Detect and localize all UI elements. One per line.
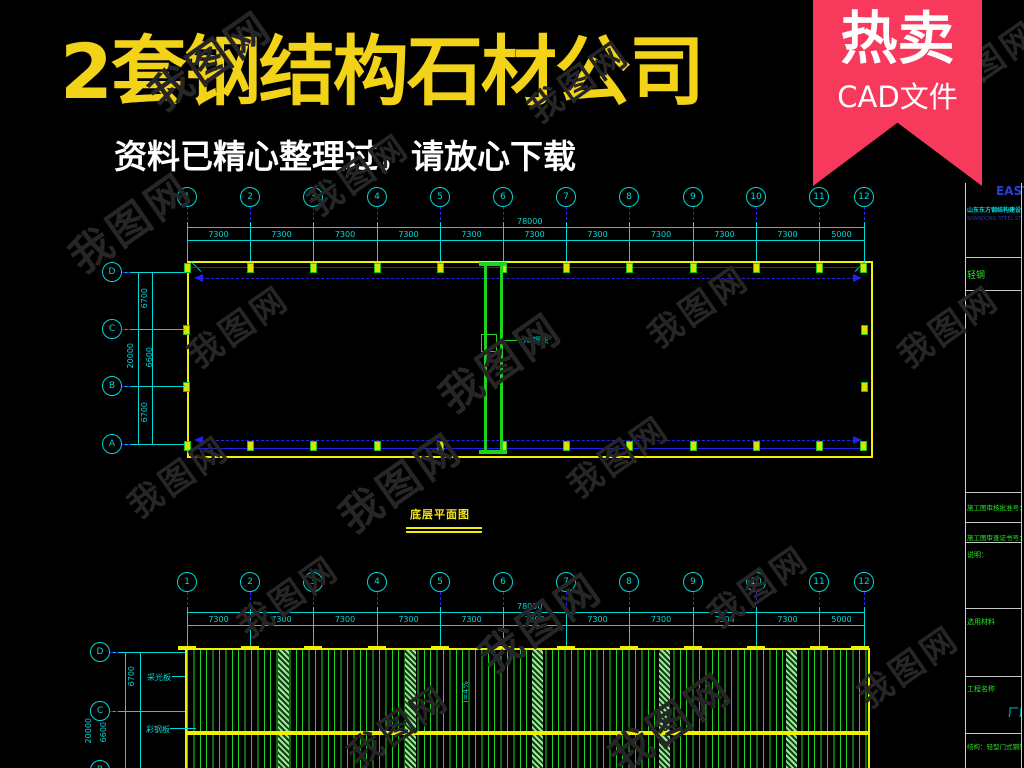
grid-bubble: 1 <box>177 572 197 592</box>
roof-label: 采光板 <box>147 672 171 683</box>
dim-tick <box>313 607 314 648</box>
grid-bubble: 12 <box>854 572 874 592</box>
dim-value: 7300 <box>394 615 424 624</box>
gutter-mark <box>368 646 386 650</box>
titleblock-field: 施工图审查证书号： <box>967 532 1021 542</box>
row-bubble: D <box>90 642 110 662</box>
dim-value-rotated: 20000 <box>84 718 93 743</box>
dim-tick <box>566 607 567 648</box>
dim-value: 7300 <box>646 615 676 624</box>
dim-tick <box>693 607 694 648</box>
dim-tick <box>120 652 185 653</box>
dim-line <box>125 652 126 768</box>
roof-hatch <box>187 650 868 768</box>
dim-value: 7300 <box>710 615 740 624</box>
skylight-band <box>786 650 797 768</box>
dim-tick <box>440 607 441 648</box>
dim-tick <box>819 607 820 648</box>
grid-bubble: 6 <box>493 572 513 592</box>
titleblock-field: 结构：轻型门式钢架 <box>967 741 1021 751</box>
roof-edge <box>185 648 187 768</box>
dim-value-rotated: 6600 <box>99 722 108 742</box>
row-bubble: B <box>90 760 110 768</box>
skylight-band <box>278 650 289 768</box>
dim-value: 7300 <box>330 615 360 624</box>
grid-bubble: 10 <box>746 572 766 592</box>
gutter-mark <box>557 646 575 650</box>
dim-tick <box>377 607 378 648</box>
roof-edge <box>868 648 870 768</box>
slope-label: i=4% <box>461 681 470 703</box>
dim-value: 7300 <box>204 615 234 624</box>
gutter-mark <box>810 646 828 650</box>
gutter-mark <box>304 646 322 650</box>
grid-bubble: 5 <box>430 572 450 592</box>
dim-tick <box>503 607 504 648</box>
dim-value: 7300 <box>773 615 803 624</box>
caption-underline <box>406 531 482 533</box>
titleblock-field: 选用材料 <box>967 617 1021 627</box>
dim-line <box>187 612 864 613</box>
dim-tick <box>250 607 251 648</box>
ribbon-cad-label: CAD文件 <box>813 74 982 116</box>
dim-value: 5000 <box>827 615 857 624</box>
dim-value: 7300 <box>583 615 613 624</box>
roof-edge <box>185 648 870 650</box>
titleblock-line <box>966 257 1021 258</box>
grid-bubble: 2 <box>240 572 260 592</box>
leader-line <box>170 728 196 729</box>
subtitle: 资料已精心整理过，请放心下载 <box>114 130 576 178</box>
dim-line <box>187 625 864 626</box>
gutter-mark <box>178 646 196 650</box>
titleblock-field: 说明： <box>967 550 1021 560</box>
dim-tick <box>187 607 188 648</box>
gutter-mark <box>431 646 449 650</box>
skylight-band <box>405 650 416 768</box>
cad-poster: 我图网我图网我图网我图网我图网我图网我图网我图网我图网我图网我图网我图网我图网我… <box>0 0 1024 768</box>
skylight-band <box>659 650 670 768</box>
gutter-mark <box>241 646 259 650</box>
grid-bubble: 11 <box>809 572 829 592</box>
drawing1-caption: 底层平面图 <box>410 506 470 522</box>
titleblock-field: 厂房 <box>1008 704 1021 720</box>
grid-bubble: 8 <box>619 572 639 592</box>
skylight-band <box>532 650 543 768</box>
dim-total-value: 78000 <box>517 602 542 611</box>
dim-value: 7300 <box>267 615 297 624</box>
grid-bubble: 7 <box>556 572 576 592</box>
roof-label: 彩钢板 <box>146 724 170 735</box>
dim-tick <box>864 607 865 648</box>
title-block: EAST 山东东方钢结构建设工程有限公司 SHANDONG STEEL STRU… <box>965 183 1023 768</box>
titleblock-line <box>966 676 1021 677</box>
titleblock-line <box>966 733 1021 734</box>
dim-line <box>140 652 141 768</box>
grid-bubble: 3 <box>303 572 323 592</box>
titleblock-field: 工程名称 <box>967 684 1021 694</box>
dim-tick <box>120 711 185 712</box>
leader-line <box>172 676 185 677</box>
gutter-mark <box>747 646 765 650</box>
titleblock-line <box>966 290 1021 291</box>
titleblock-line <box>966 492 1021 493</box>
page-title: 2套钢结构石材公司 <box>60 10 703 120</box>
gutter-mark <box>684 646 702 650</box>
ridge-line <box>185 731 870 735</box>
titleblock-line <box>966 608 1021 609</box>
row-bubble: C <box>90 701 110 721</box>
gutter-mark <box>620 646 638 650</box>
titleblock-field: 轻钢 <box>967 268 1021 281</box>
gutter-mark <box>851 646 869 650</box>
titleblock-company: 山东东方钢结构建设工程有限公司 <box>967 205 1022 214</box>
dim-tick <box>756 607 757 648</box>
titleblock-line <box>966 522 1021 523</box>
titleblock-field: 施工图审核批准号： <box>967 502 1021 512</box>
dim-value: 7300 <box>520 615 550 624</box>
dim-value-rotated: 6700 <box>127 666 136 686</box>
titleblock-brand: EAST <box>996 184 1024 198</box>
grid-bubble: 9 <box>683 572 703 592</box>
titleblock-line <box>966 542 1021 543</box>
ribbon-hot-label: 热卖 <box>813 10 982 70</box>
grid-bubble: 4 <box>367 572 387 592</box>
gutter-mark <box>494 646 512 650</box>
titleblock-company-en: SHANDONG STEEL STRUCTURE CO.,LTD <box>967 216 1022 222</box>
titleblock-border <box>965 183 966 768</box>
caption-underline <box>406 527 482 529</box>
dim-value: 7300 <box>457 615 487 624</box>
dim-tick <box>629 607 630 648</box>
titleblock-border <box>1021 183 1022 768</box>
